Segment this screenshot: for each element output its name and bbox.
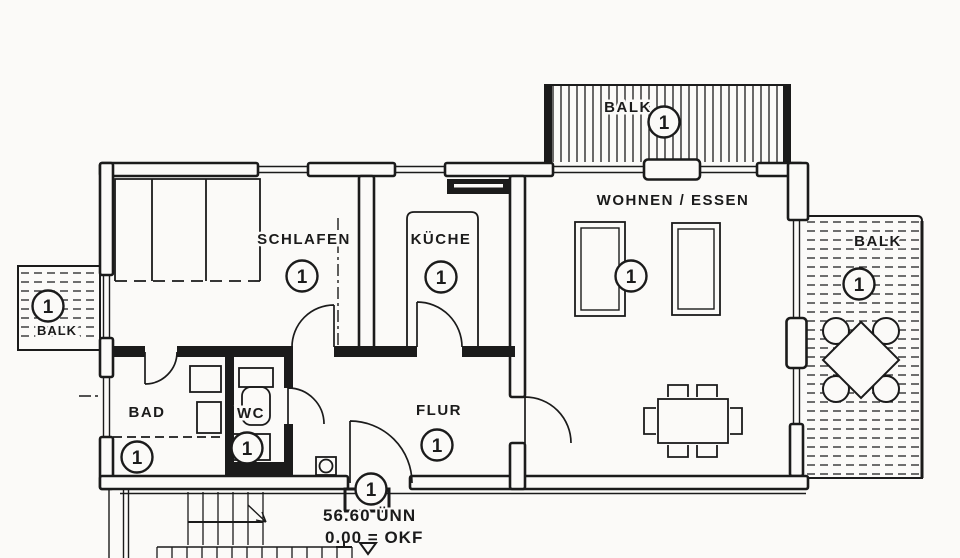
wall-right-1 bbox=[790, 424, 803, 476]
unit-marker-balcony-right: 1 bbox=[844, 269, 875, 300]
floor-plan-drawing: SCHLAFEN KÜCHE WOHNEN / ESSEN BAD WC FLU… bbox=[0, 0, 960, 558]
elevation-level-text: 56.60 ÜNN bbox=[323, 506, 416, 525]
balcony-label-left: BALK bbox=[37, 323, 77, 338]
room-label-wc: WC bbox=[237, 405, 265, 422]
balcony-table-set bbox=[823, 318, 899, 402]
svg-text:1: 1 bbox=[297, 267, 308, 288]
wall-flur-top-3 bbox=[334, 346, 417, 357]
wall-flur-top-2 bbox=[177, 346, 292, 357]
room-label-kueche: KÜCHE bbox=[411, 231, 472, 248]
wall-flur-top-1 bbox=[113, 346, 145, 357]
paper-background bbox=[0, 0, 960, 558]
svg-text:1: 1 bbox=[242, 439, 253, 460]
unit-marker-balcony-left: 1 bbox=[33, 291, 64, 322]
balcony-label-top: BALK bbox=[604, 99, 652, 116]
room-label-flur: FLUR bbox=[416, 402, 462, 419]
unit-marker-balcony-top: 1 bbox=[649, 107, 680, 138]
room-label-bad: BAD bbox=[129, 404, 166, 421]
unit-marker-entrance: 1 bbox=[356, 474, 387, 505]
floor-plan-page: SCHLAFEN KÜCHE WOHNEN / ESSEN BAD WC FLU… bbox=[0, 0, 960, 558]
wall-bottom-2 bbox=[410, 476, 808, 489]
wall-wc-flur-upper bbox=[284, 346, 293, 388]
wall-bottom-1 bbox=[100, 476, 348, 489]
unit-marker-flur: 1 bbox=[422, 430, 453, 461]
unit-marker-wc: 1 bbox=[232, 433, 263, 464]
wall-kueche-wohnen bbox=[510, 176, 525, 397]
svg-text:1: 1 bbox=[43, 297, 54, 318]
unit-marker-bad: 1 bbox=[122, 442, 153, 473]
svg-text:1: 1 bbox=[366, 480, 377, 501]
room-label-schlafen: SCHLAFEN bbox=[257, 231, 351, 248]
unit-marker-schlafen: 1 bbox=[287, 261, 318, 292]
wall-top-2 bbox=[308, 163, 395, 176]
svg-text:1: 1 bbox=[659, 113, 670, 134]
wall-wc-plumbing bbox=[230, 462, 284, 476]
wall-flur-wohnen-lower bbox=[510, 443, 525, 489]
balcony-top-post-left bbox=[545, 84, 552, 164]
sill-balcony-right-door bbox=[787, 318, 807, 368]
unit-marker-kueche: 1 bbox=[426, 262, 457, 293]
wall-top-1 bbox=[100, 163, 258, 176]
svg-text:1: 1 bbox=[432, 436, 443, 457]
elevation-annotations: 56.60 ÜNN 0.00 = OKF bbox=[323, 506, 423, 554]
svg-text:1: 1 bbox=[132, 448, 143, 469]
svg-text:1: 1 bbox=[436, 268, 447, 289]
svg-text:1: 1 bbox=[854, 275, 865, 296]
balcony-top-post-right bbox=[783, 84, 790, 164]
wall-top-3 bbox=[445, 163, 553, 176]
wall-wc-flur-lower bbox=[284, 424, 293, 476]
wall-left-1 bbox=[100, 163, 113, 275]
room-label-wohnen-essen: WOHNEN / ESSEN bbox=[597, 192, 750, 209]
wall-left-2 bbox=[100, 338, 113, 377]
unit-marker-wohnen-essen: 1 bbox=[616, 261, 647, 292]
balcony-label-right: BALK bbox=[854, 233, 902, 250]
kitchen-duct-slit bbox=[454, 184, 503, 188]
sill-balcony-top-door bbox=[644, 160, 700, 180]
wall-flur-top-4 bbox=[462, 346, 515, 357]
svg-text:1: 1 bbox=[626, 267, 637, 288]
wall-schlafen-kueche bbox=[359, 176, 374, 348]
wall-corner-top-right bbox=[788, 163, 808, 220]
